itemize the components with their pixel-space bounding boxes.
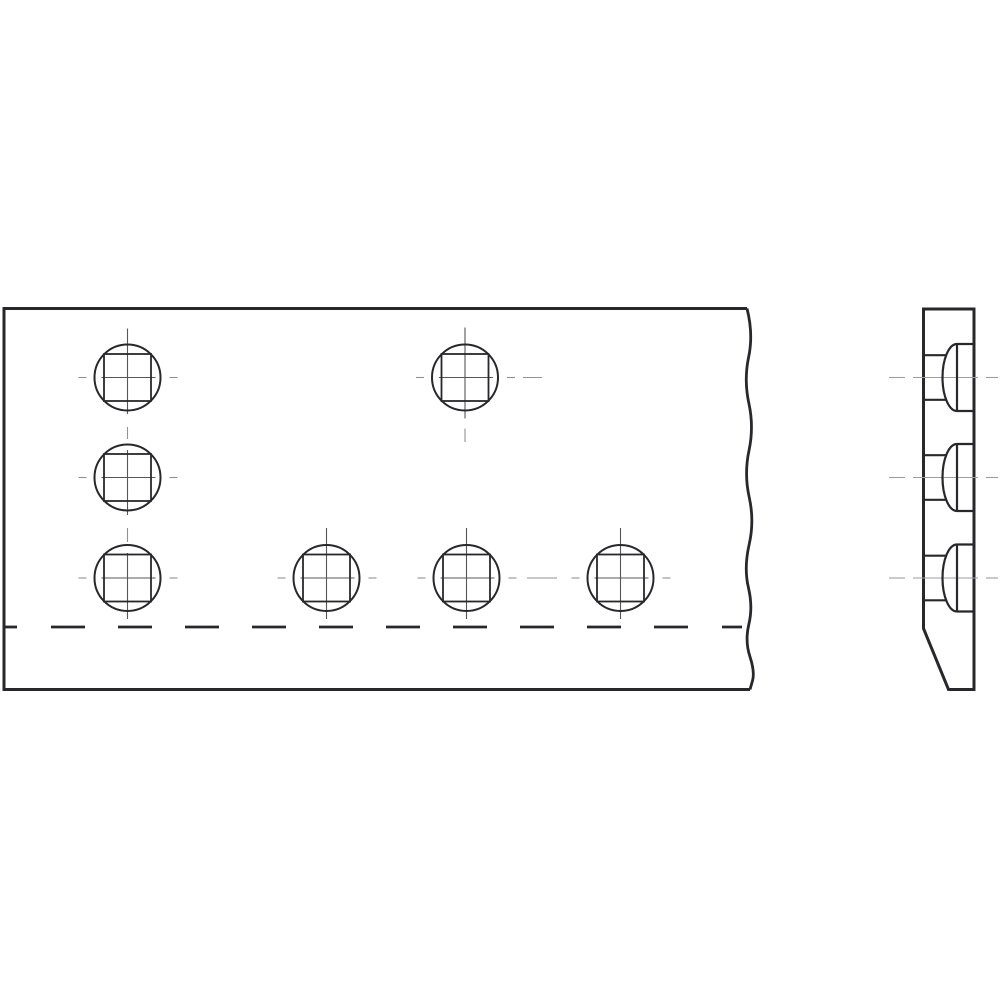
square-hole-with-counterbore	[278, 528, 377, 619]
side-hole-profile	[889, 444, 998, 511]
side-hole-profile	[889, 344, 998, 411]
square-hole-with-counterbore	[572, 528, 671, 619]
square-hole-with-counterbore	[416, 328, 515, 443]
square-hole-with-counterbore	[418, 528, 517, 619]
technical-drawing-page	[0, 0, 1000, 1000]
plate-outline	[4, 309, 750, 690]
row-centerline-extra	[523, 378, 557, 579]
front-view	[4, 309, 753, 690]
square-hole-with-counterbore	[79, 445, 178, 511]
side-hole-profile	[889, 545, 998, 612]
side-view	[889, 309, 998, 690]
square-hole-with-counterbore	[79, 545, 178, 611]
technical-drawing	[0, 0, 1000, 1000]
square-hole-with-counterbore	[79, 345, 178, 411]
break-line	[746, 309, 753, 690]
